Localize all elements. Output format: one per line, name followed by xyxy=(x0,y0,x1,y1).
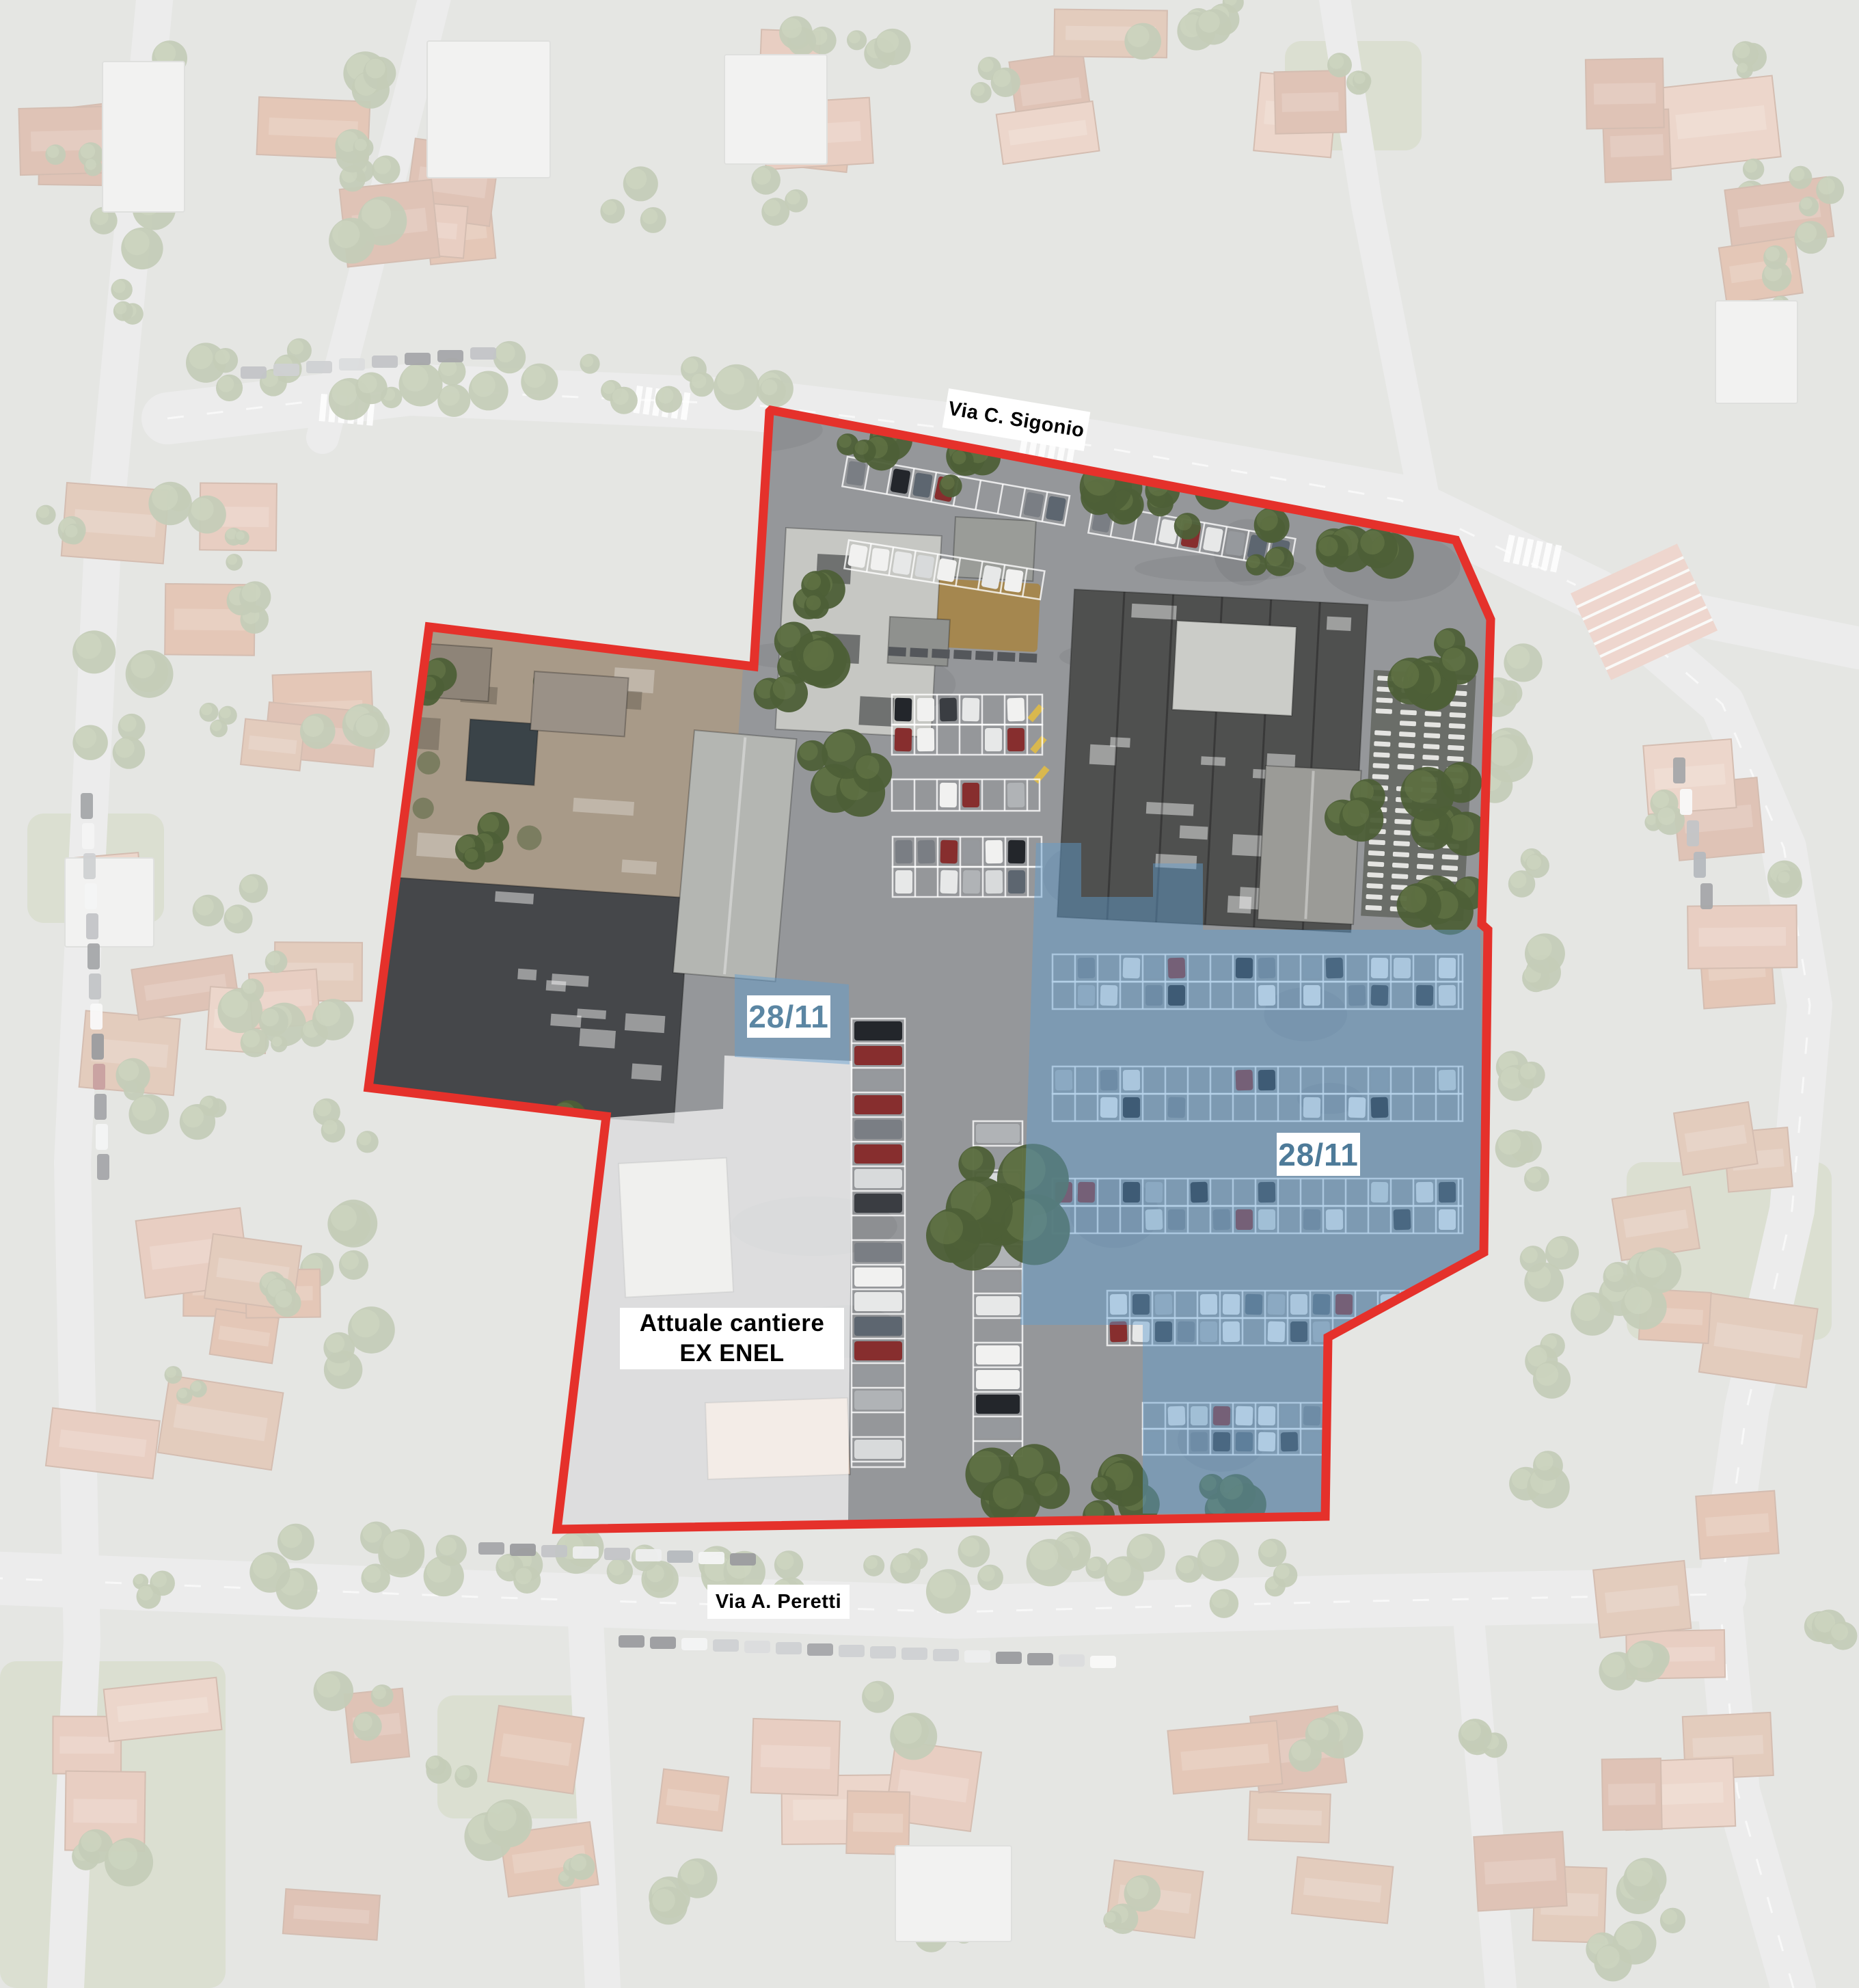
parcel-label-28-11-large-text: 28/11 xyxy=(1278,1136,1359,1173)
aerial-photo xyxy=(0,0,1859,1988)
street-label-peretti-text: Via A. Peretti xyxy=(716,1591,841,1613)
aerial-map: Via C. Sigonio Via A. Peretti 28/11 28/1… xyxy=(0,0,1859,1988)
parcel-label-28-11-small-text: 28/11 xyxy=(748,998,829,1035)
site-label-ex-enel: Attuale cantiere EX ENEL xyxy=(620,1308,844,1369)
site-label-line1: Attuale cantiere xyxy=(640,1308,825,1339)
parcel-label-28-11-small: 28/11 xyxy=(747,995,830,1038)
site-label-line2: EX ENEL xyxy=(679,1339,784,1369)
street-label-peretti: Via A. Peretti xyxy=(707,1585,850,1619)
parcel-label-28-11-large: 28/11 xyxy=(1277,1133,1360,1176)
